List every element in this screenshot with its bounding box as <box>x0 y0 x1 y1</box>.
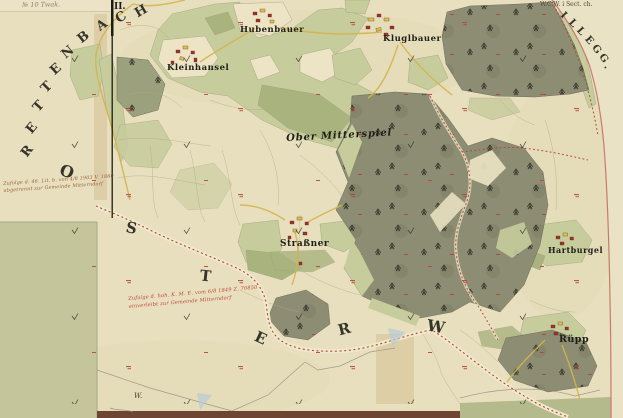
label-kleinhansel: Kleinhansel <box>167 63 229 73</box>
map-sheet: № 10 Twak. II. W.C.W. i Sect. ch. Hubenb… <box>0 0 623 418</box>
survey-ticks-overlay <box>58 12 606 404</box>
map-canvas <box>0 0 623 418</box>
osterw-letter: W <box>425 316 446 338</box>
label-hartburgel: Hartburgel <box>548 245 603 255</box>
pencil-w-mark: W. <box>134 392 142 400</box>
label-strassner: Straßner <box>280 239 329 249</box>
osterw-letter: T <box>199 266 212 285</box>
label-ruepp: Rüpp <box>559 334 589 345</box>
corner-note: W.C.W. i Sect. ch. <box>540 1 592 8</box>
label-kluglbauer: Kluglbauer <box>383 34 442 44</box>
margin-note: № 10 Twak. <box>22 0 60 9</box>
label-hubenbauer: Hubenbauer <box>240 25 304 35</box>
